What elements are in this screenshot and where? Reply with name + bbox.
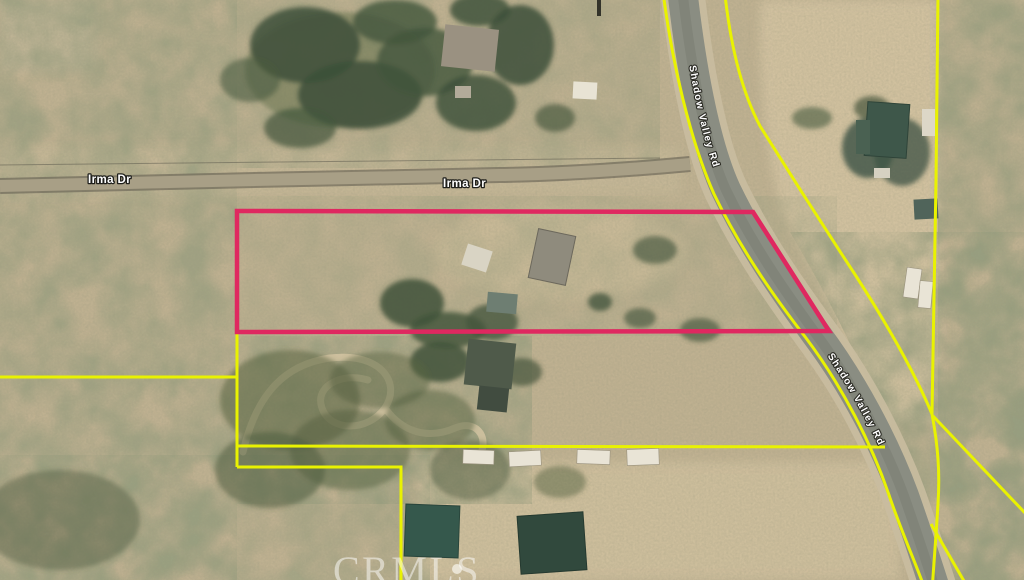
tree (430, 440, 510, 500)
trailer (918, 281, 933, 309)
tree (330, 352, 430, 408)
tree (588, 293, 612, 311)
utility-pole (597, 0, 601, 16)
satellite-canvas[interactable]: Irma Dr Irma Dr Shadow Valley Rd Shadow … (0, 0, 1024, 580)
terrain-grain (0, 0, 1024, 580)
trailer (509, 450, 542, 467)
tree (436, 75, 516, 131)
tree (353, 0, 437, 44)
tree (215, 432, 325, 508)
tree (264, 108, 336, 148)
building (517, 512, 587, 574)
building (464, 339, 517, 390)
building (477, 385, 509, 412)
trailer (577, 449, 610, 464)
tree (624, 308, 656, 328)
shed (874, 168, 890, 178)
building (856, 120, 870, 154)
shed (455, 86, 471, 98)
boundary-south-horizontal (237, 446, 885, 447)
building (864, 102, 910, 159)
trailer (463, 449, 494, 464)
tree (792, 107, 832, 129)
building (441, 24, 499, 71)
trailer (627, 448, 660, 465)
street-label-irma-center: Irma Dr (443, 178, 486, 190)
shed (486, 292, 518, 315)
tree (633, 236, 677, 264)
shed (573, 81, 598, 99)
watermark-crmls: CRMLS (333, 548, 481, 580)
tree (534, 466, 586, 498)
tree (535, 104, 575, 132)
map-container[interactable]: Irma Dr Irma Dr Shadow Valley Rd Shadow … (0, 0, 1024, 580)
tree (220, 58, 280, 102)
street-label-irma-west: Irma Dr (88, 174, 131, 186)
shed (922, 109, 935, 136)
